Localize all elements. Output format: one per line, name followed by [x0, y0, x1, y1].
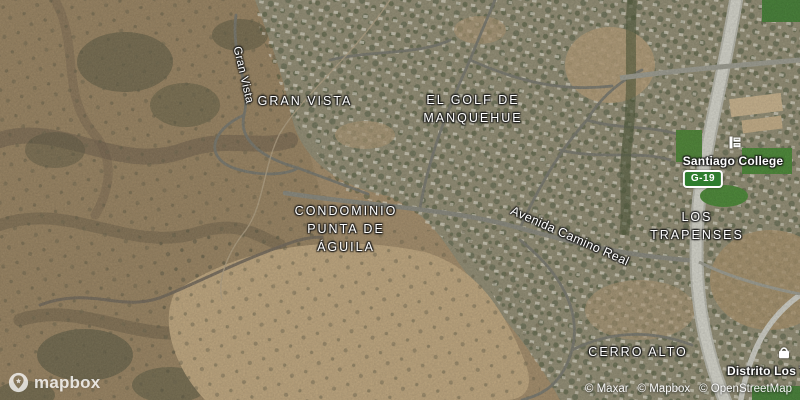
attribution-openstreetmap-link[interactable]: © OpenStreetMap — [699, 383, 792, 395]
mapbox-wordmark: mapbox — [34, 373, 100, 393]
shopping-bag-icon — [777, 346, 791, 365]
attribution-maxar-link[interactable]: © Maxar — [585, 383, 629, 395]
satellite-map-canvas[interactable] — [0, 0, 800, 400]
mapbox-pin-icon — [8, 372, 29, 393]
route-shield-g19: G-19 — [683, 170, 723, 188]
school-icon — [729, 136, 742, 154]
map-attribution: © Maxar © Mapbox © OpenStreetMap — [585, 383, 792, 395]
mapbox-logo-link[interactable]: mapbox — [8, 372, 100, 393]
map-viewport: GRAN VISTA EL GOLF DE MANQUEHUE CONDOMIN… — [0, 0, 800, 400]
attribution-mapbox-link[interactable]: © Mapbox — [638, 383, 691, 395]
